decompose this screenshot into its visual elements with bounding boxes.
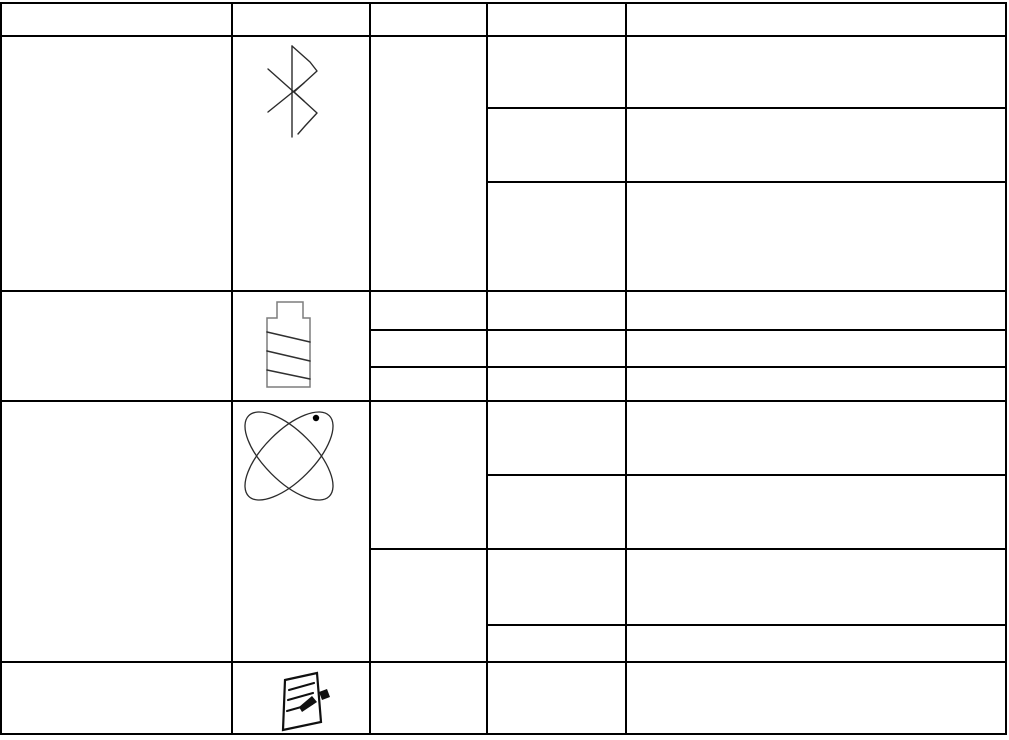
grid-line-col-2 [369, 2, 371, 735]
grid-line-row1-sub1 [486, 107, 1007, 109]
grid-line-header-bottom [0, 35, 1007, 37]
grid-line-row3-sub3 [486, 624, 1007, 626]
grid-line-row2-bottom [0, 400, 1007, 402]
grid-line-row3-sub2 [369, 548, 1007, 550]
battery-icon [266, 301, 312, 389]
grid-line-row1-sub2 [486, 181, 1007, 183]
grid-line-row2-sub2 [369, 366, 1007, 368]
grid-line-row3-sub1 [486, 474, 1007, 476]
bluetooth-icon [262, 44, 324, 140]
grid-line-row3-bottom [0, 661, 1007, 663]
manual-page [0, 0, 1009, 740]
grid-line-row2-sub1 [369, 329, 1007, 331]
grid-line-left-border [0, 2, 2, 735]
grid-line-bottom-border [0, 733, 1007, 735]
grid-line-col-1 [231, 2, 233, 735]
grid-line-top-border [0, 2, 1007, 4]
grid-line-row1-bottom [0, 290, 1007, 292]
note-icon [277, 671, 333, 733]
atom-icon [242, 410, 336, 502]
electron-dot [313, 415, 319, 421]
